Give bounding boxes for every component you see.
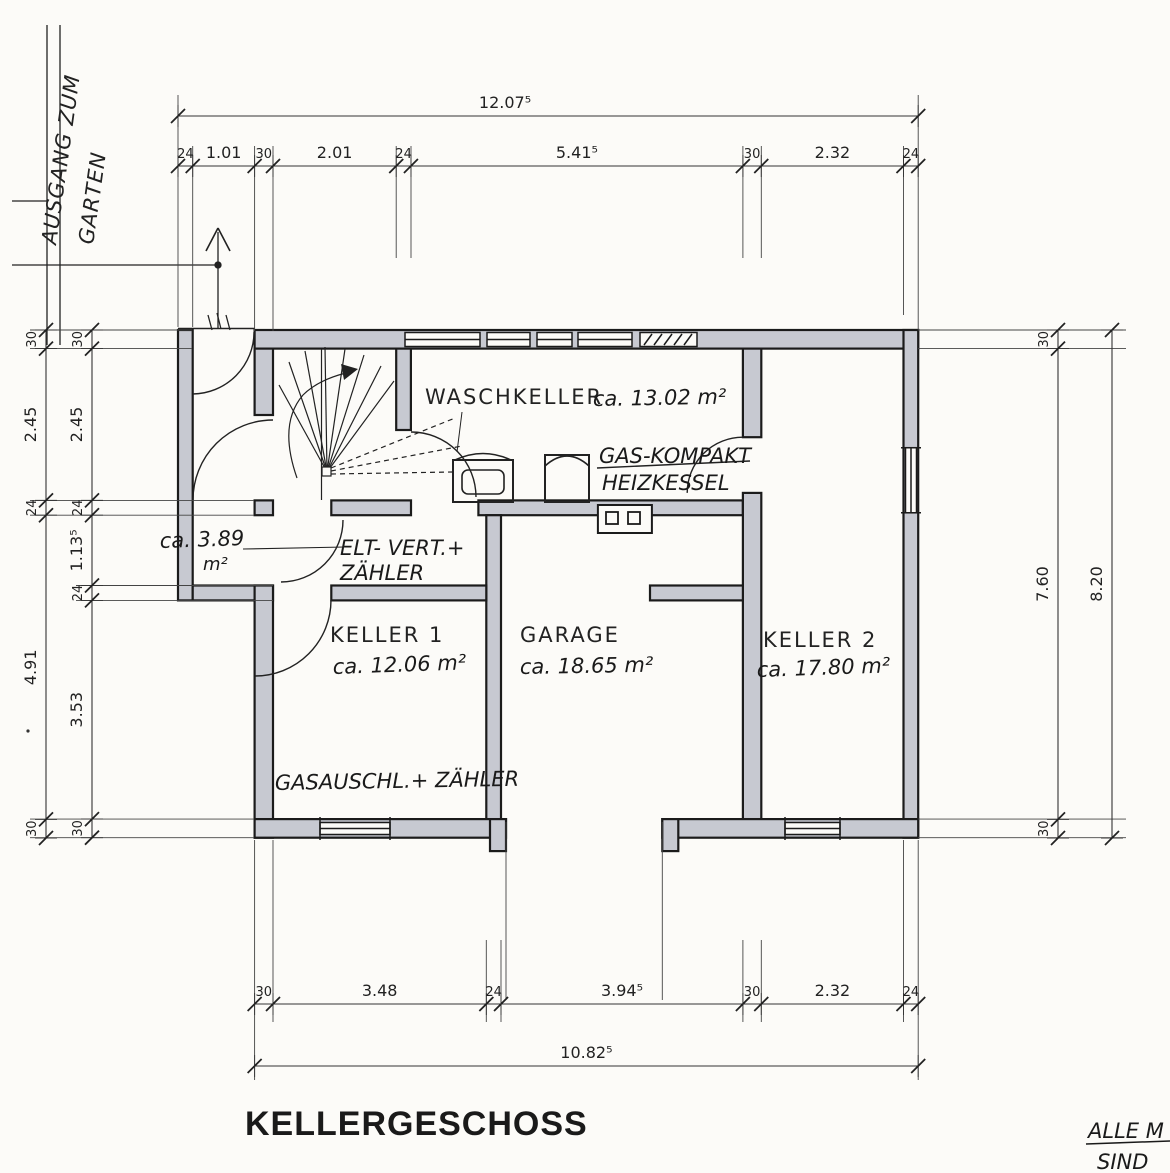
room-label-waschkeller: WASCHKELLER — [425, 385, 603, 409]
corner-note-line2: SIND — [1097, 1150, 1148, 1173]
dim-label: 4.91 — [21, 650, 40, 686]
wall-stair-south — [331, 500, 411, 515]
dim-label: 30 — [71, 331, 86, 348]
dim-label: 2.45 — [67, 407, 86, 443]
floor-plan-scan: 12.07⁵241.01302.01245.41⁵302.3224302.452… — [0, 0, 1170, 1173]
label-elt-line1: ELT- VERT.+ — [340, 536, 464, 560]
wall-west-upper — [255, 349, 273, 415]
room-label-keller1: KELLER 1 — [330, 623, 444, 647]
wall-annex-west — [178, 330, 193, 600]
room-label-garage: GARAGE — [520, 623, 620, 647]
dim-label: 30 — [1037, 331, 1052, 348]
window-top-2 — [487, 333, 530, 347]
dim-label: 24 — [485, 985, 502, 1000]
window-top-3 — [537, 333, 572, 347]
dim-label: 30 — [744, 147, 761, 162]
stair-direction-arrowhead — [341, 364, 358, 380]
wall-keller2-west-upper — [743, 349, 761, 438]
labels: WASCHKELLER ca. 13.02 m² GAS-KOMPAKT HEI… — [37, 73, 1170, 1173]
door-annex-hall-arc — [193, 420, 273, 500]
area-label-hall: ca. 3.89 — [159, 526, 244, 553]
garden-exterior — [12, 25, 230, 733]
wall-garage-stub — [650, 586, 743, 601]
label-heizung-line1: GAS-KOMPAKT — [599, 444, 753, 468]
wall-west-mid — [255, 500, 273, 515]
window-top-4 — [578, 333, 632, 347]
area-label-waschkeller: ca. 13.02 m² — [593, 385, 727, 411]
dim-label: 3.53 — [67, 692, 86, 728]
label-gasanschluss: GASAUSCHL.+ ZÄHLER — [275, 766, 520, 795]
area-unit-hall: m² — [203, 554, 228, 575]
area-label-keller1: ca. 12.06 m² — [332, 650, 467, 679]
dim-label: 7.60 — [1033, 566, 1052, 602]
dim-label: 30 — [256, 985, 273, 1000]
washing-machine — [453, 454, 513, 503]
floor-plan-drawing: 12.07⁵241.01302.01245.41⁵302.3224302.452… — [0, 0, 1170, 1173]
door-hall-waschkeller-arc — [411, 432, 476, 497]
page-title: KELLERGESCHOSS — [245, 1105, 588, 1143]
dim-label: 30 — [744, 985, 761, 1000]
dim-label: 1.13⁵ — [67, 529, 86, 571]
dim-label: 30 — [25, 820, 40, 837]
label-heizung-line2: HEIZKESSEL — [602, 471, 730, 495]
exterior-stair-treads — [208, 313, 230, 330]
hall-leader-line — [243, 547, 345, 549]
dim-label: 3.94⁵ — [601, 981, 643, 1000]
dim-label: 2.45 — [21, 407, 40, 443]
window-top-5-lightshaft — [640, 333, 697, 347]
dim-label: 24 — [395, 147, 412, 162]
dim-label: 2.32 — [815, 143, 851, 162]
area-label-garage: ca. 18.65 m² — [520, 653, 654, 679]
dim-label: 12.07⁵ — [479, 93, 531, 112]
area-label-keller2: ca. 17.80 m² — [756, 653, 891, 682]
dim-label: 2.32 — [815, 981, 851, 1000]
boiler — [545, 455, 589, 502]
dim-label: 24 — [25, 500, 40, 517]
wall-garage-jamb-right — [662, 819, 678, 851]
dim-label: 24 — [177, 147, 194, 162]
dim-label: 30 — [25, 331, 40, 348]
wall-keller2-west-lower — [743, 493, 761, 819]
wall-keller1-north — [331, 586, 486, 601]
dim-label: 8.20 — [1087, 566, 1106, 602]
dim-label: 5.41⁵ — [556, 143, 598, 162]
dim-label: 24 — [903, 147, 920, 162]
door-entry-arc — [193, 332, 254, 394]
stair-newel — [322, 467, 331, 476]
label-elt-line2: ZÄHLER — [339, 560, 424, 585]
dim-label: 3.48 — [362, 981, 398, 1000]
chimney-block — [598, 505, 652, 533]
wall-west-lower — [255, 586, 273, 838]
wall-east — [904, 330, 919, 838]
dim-label: 2.01 — [317, 143, 353, 162]
dim-label: 24 — [903, 985, 920, 1000]
stair-direction-line — [289, 373, 346, 478]
dim-label: 1.01 — [206, 143, 242, 162]
dim-label: 24 — [71, 500, 86, 517]
dim-label: 24 — [71, 585, 86, 602]
wall-garage-jamb-left — [490, 819, 506, 851]
dim-label: 10.82⁵ — [560, 1043, 612, 1062]
door-hall-elt-arc — [281, 520, 343, 582]
room-label-keller2: KELLER 2 — [763, 628, 877, 652]
garden-label-line2: GARTEN — [74, 150, 111, 245]
wall-stair-east — [396, 349, 411, 430]
staircase — [279, 347, 462, 500]
corner-note-line1: ALLE M — [1086, 1119, 1164, 1143]
dim-label: 30 — [71, 820, 86, 837]
dim-label: 30 — [256, 147, 273, 162]
dim-label: 30 — [1037, 820, 1052, 837]
stray-mark — [26, 729, 29, 732]
window-top-1 — [405, 333, 480, 347]
